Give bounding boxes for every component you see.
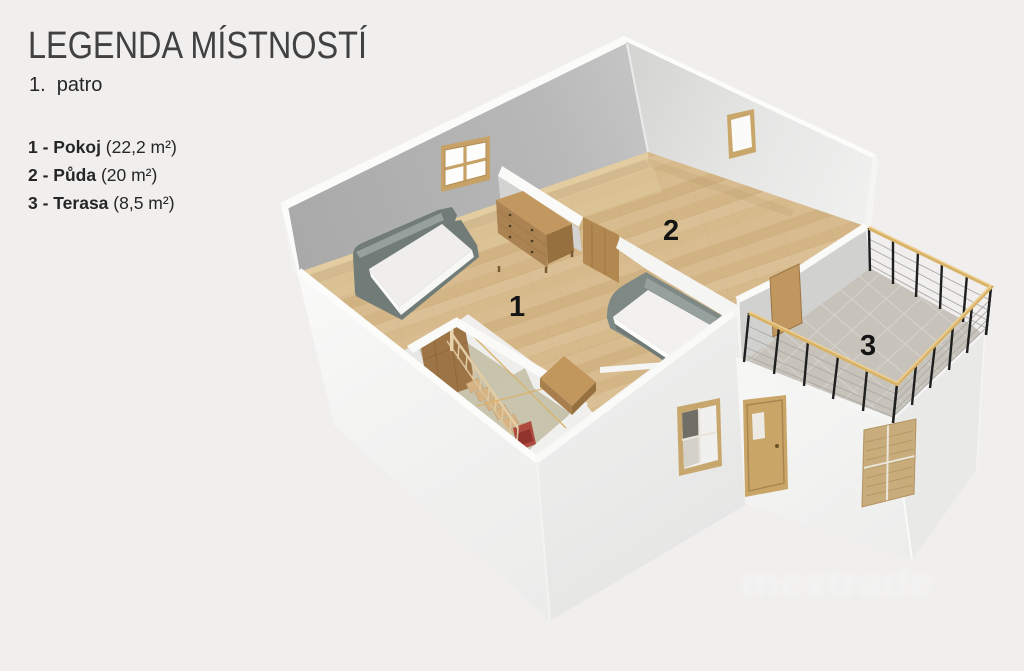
svg-text:1 - Pokoj (22,2 m²): 1 - Pokoj (22,2 m²) — [28, 137, 177, 157]
svg-text:1. patro: 1. patro — [29, 74, 102, 96]
svg-text:3 - Terasa (8,5 m²): 3 - Terasa (8,5 m²) — [28, 193, 175, 213]
svg-text:2 - Půda (20 m²): 2 - Půda (20 m²) — [28, 165, 157, 185]
svg-text:2: 2 — [663, 215, 679, 247]
svg-text:LEGENDA MÍSTNOSTÍ: LEGENDA MÍSTNOSTÍ — [28, 24, 367, 67]
svg-text:1: 1 — [509, 291, 525, 323]
svg-text:mextrade: mextrade — [741, 561, 933, 605]
svg-text:3: 3 — [860, 330, 876, 362]
